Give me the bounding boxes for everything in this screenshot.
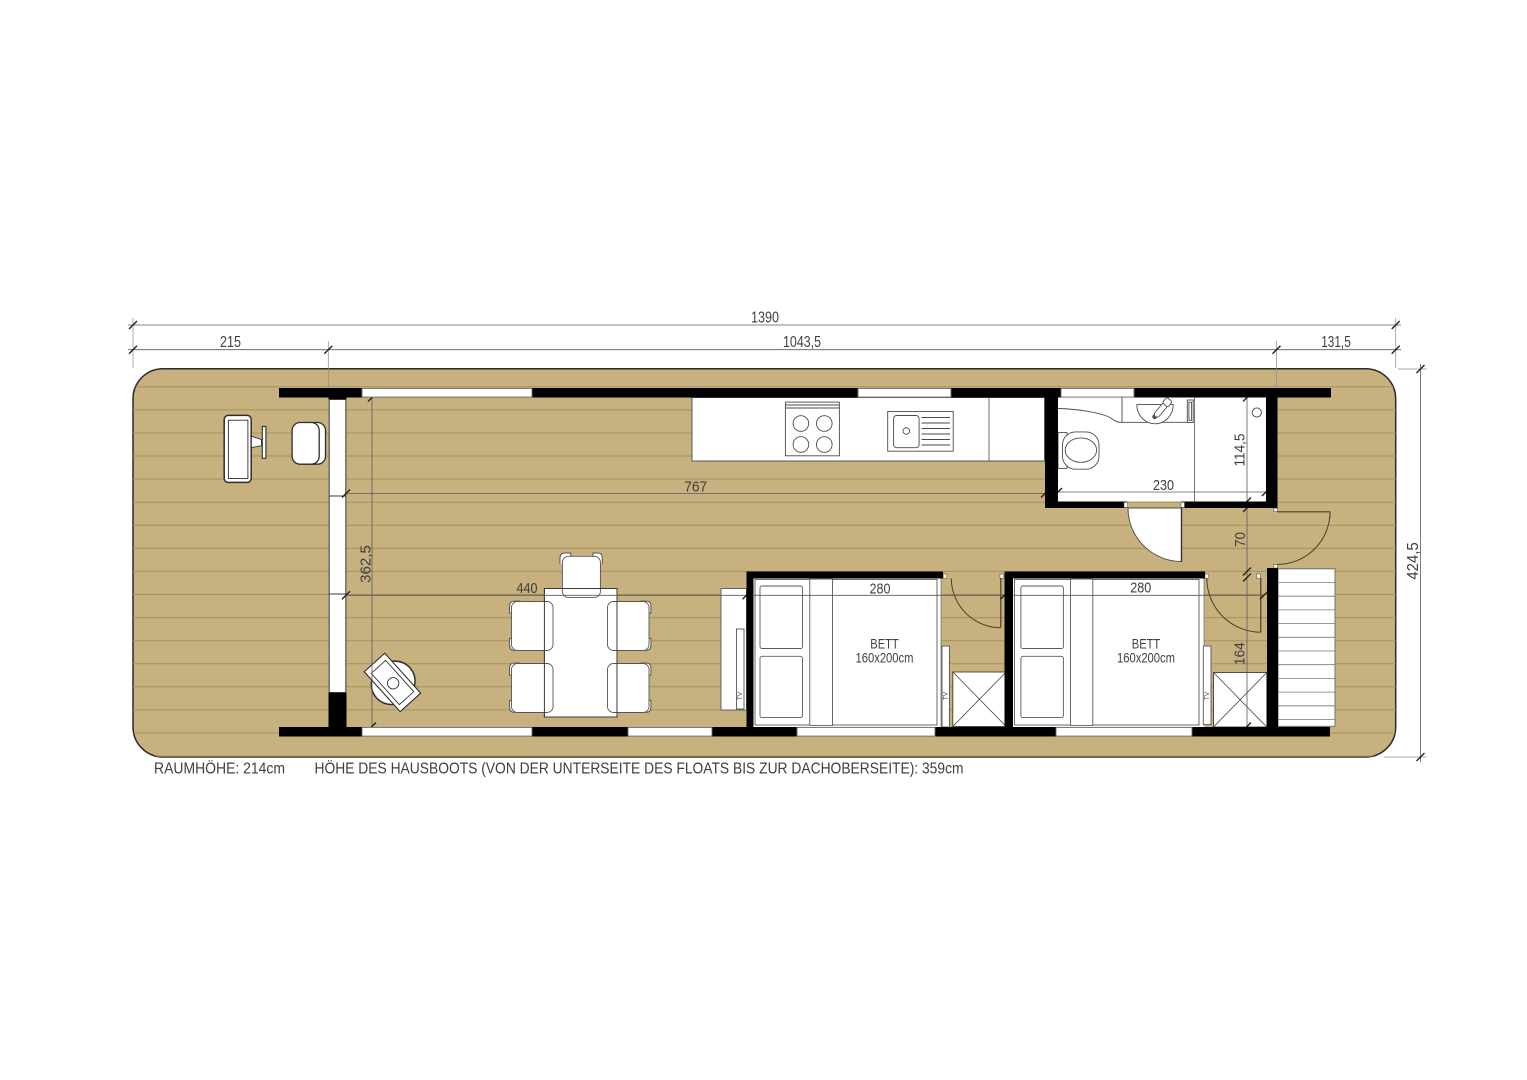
svg-text:280: 280 <box>870 581 891 598</box>
svg-text:280: 280 <box>1130 580 1151 597</box>
svg-text:160x200cm: 160x200cm <box>856 650 914 666</box>
svg-text:114,5: 114,5 <box>1231 434 1248 467</box>
svg-text:RAUMHÖHE: 214cm: RAUMHÖHE: 214cm <box>154 760 285 778</box>
svg-text:362,5: 362,5 <box>358 545 375 583</box>
svg-text:70: 70 <box>1232 532 1249 547</box>
svg-text:215: 215 <box>220 334 241 351</box>
svg-text:TV: TV <box>1204 691 1211 700</box>
svg-text:1390: 1390 <box>751 310 779 327</box>
svg-text:160x200cm: 160x200cm <box>1117 650 1175 666</box>
svg-text:1043,5: 1043,5 <box>783 334 821 351</box>
svg-text:TV: TV <box>943 691 950 700</box>
svg-text:424,5: 424,5 <box>1405 542 1422 580</box>
svg-text:164: 164 <box>1232 642 1249 665</box>
svg-text:230: 230 <box>1153 477 1174 494</box>
svg-text:767: 767 <box>684 479 707 496</box>
svg-text:131,5: 131,5 <box>1321 334 1351 351</box>
svg-text:TV: TV <box>737 691 744 700</box>
svg-text:440: 440 <box>517 580 538 597</box>
svg-text:HÖHE DES HAUSBOOTS (VON DER UN: HÖHE DES HAUSBOOTS (VON DER UNTERSEITE D… <box>315 760 964 778</box>
